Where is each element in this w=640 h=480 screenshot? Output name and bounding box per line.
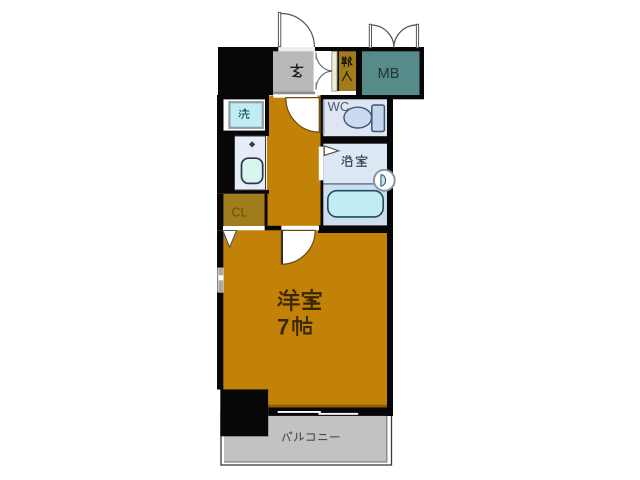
svg-text:CL: CL xyxy=(232,206,248,220)
svg-text:WC: WC xyxy=(328,99,350,114)
svg-text:MB: MB xyxy=(378,66,400,82)
svg-text:7: 7 xyxy=(277,315,289,340)
